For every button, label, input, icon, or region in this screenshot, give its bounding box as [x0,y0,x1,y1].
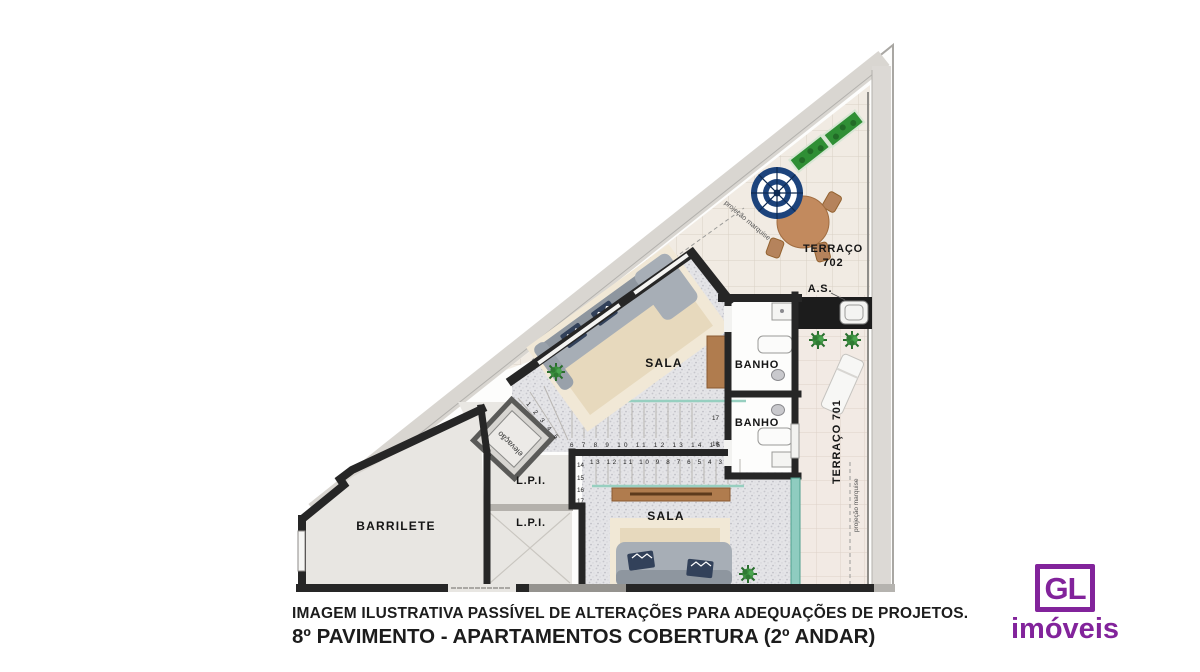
label-banho-upper: BANHO [735,359,779,371]
service-area-counter [792,297,872,329]
label-terraco-701: TERRAÇO 701 [831,399,843,484]
label-terraco-702: TERRAÇO [803,243,863,255]
agency-logo: GL imóveis [995,564,1135,644]
logo-monogram-box: GL [1035,564,1095,612]
palm-icon [843,331,861,349]
stair-number: 16 [577,487,585,494]
label-sala-lower: SALA [647,509,684,523]
label-marquise-701: projeção marquise [853,478,860,532]
label-lpi-upper: L.P.I. [516,475,546,487]
sideboard-upper [707,336,725,388]
label-sala-upper: SALA [645,356,682,370]
sideboard-lower [612,488,730,501]
stair-number: 17 [712,415,720,422]
stair-number: 14 [577,462,585,469]
stair-number: 17 [577,498,585,505]
stair-number: 15 [577,475,585,482]
label-terraco-702-number: 702 [823,257,844,269]
caption: IMAGEM ILUSTRATIVA PASSÍVEL DE ALTERAÇÕE… [292,605,968,649]
floor-plan-page: TERRAÇO 702 projeção marquise A.S. SALA … [0,0,1200,672]
stair-number: 16 [712,441,720,448]
label-lpi-lower: L.P.I. [516,517,546,529]
plant-icon [547,363,565,381]
caption-disclaimer: IMAGEM ILUSTRATIVA PASSÍVEL DE ALTERAÇÕE… [292,605,968,623]
caption-floor-title: 8º PAVIMENTO - APARTAMENTOS COBERTURA (2… [292,625,968,649]
sofa-lower [610,518,732,586]
label-banho-lower: BANHO [735,417,779,429]
logo-monogram: GL [1044,573,1085,604]
label-as: A.S. [808,283,833,295]
label-barrilete: BARRILETE [356,519,435,533]
plant-icon [739,565,757,583]
logo-wordmark: imóveis [995,615,1135,644]
palm-icon [809,331,827,349]
umbrella-icon [751,167,803,219]
